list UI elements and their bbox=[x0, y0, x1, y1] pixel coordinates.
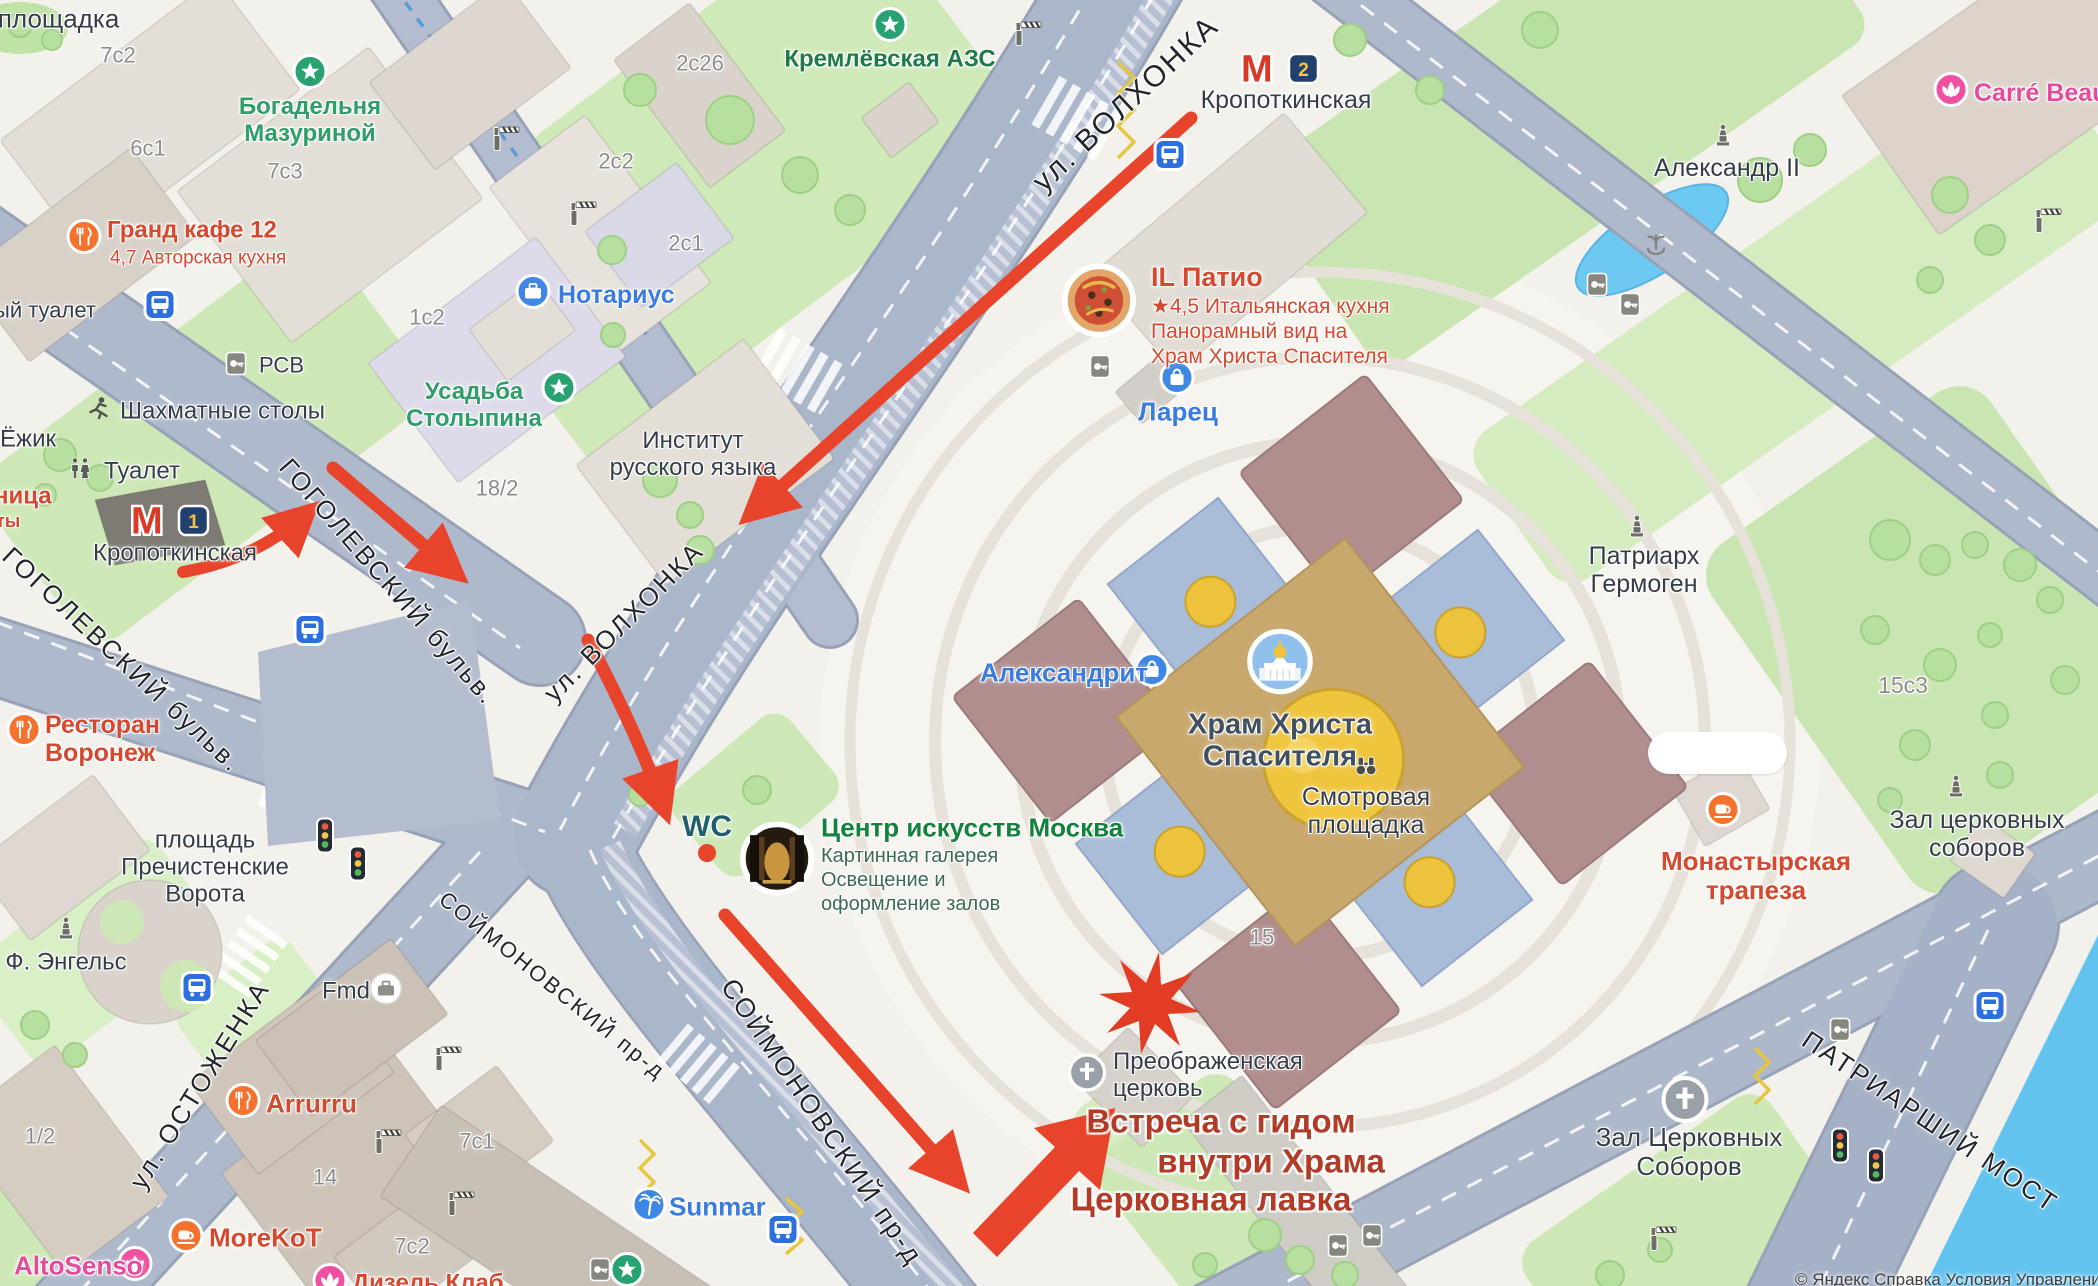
blurred-label-pill bbox=[1648, 732, 1787, 774]
map-canvas[interactable] bbox=[0, 0, 2098, 1286]
wc-point-dot bbox=[698, 844, 716, 862]
map-viewport[interactable]: { "map": { "attribution": "© Яндекс Спра… bbox=[0, 0, 2098, 1286]
map-attribution[interactable]: © Яндекс Справка Условия Управление bbox=[1795, 1270, 2098, 1286]
